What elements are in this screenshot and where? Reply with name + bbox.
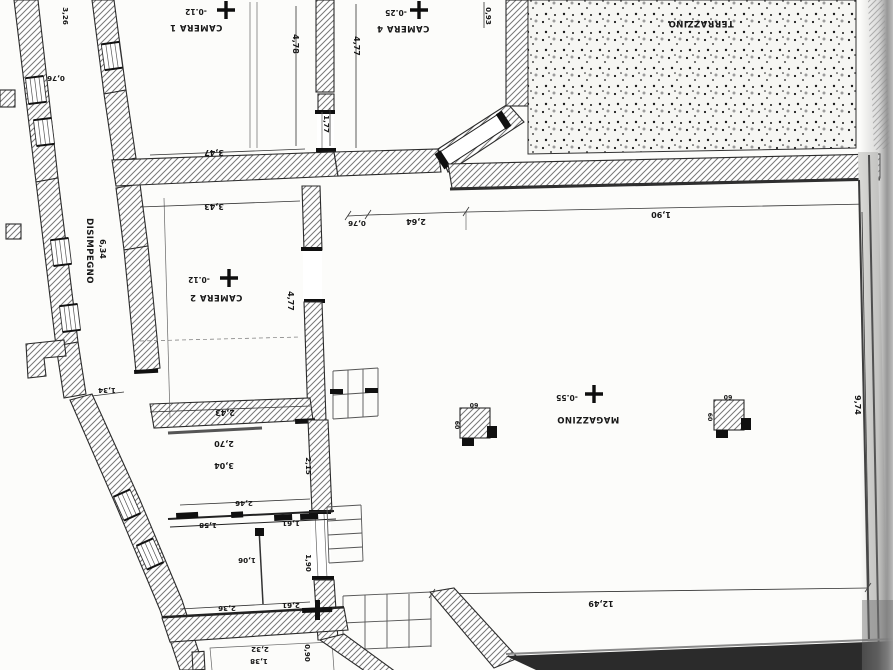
dim-corridor-end: 1,34 [98,386,116,395]
dim-camera4-depth: 4,77 [352,36,361,56]
window-icon [50,238,71,266]
dim-room-b-top: 1,58 [199,521,217,530]
level-label-camera-4: -0.25 [385,8,407,17]
dim-magazzino-width: 12,49 [588,599,614,608]
room-label-camera-2: CAMERA 2 [190,292,243,302]
dim-magazzino-top-2: 2,64 [406,217,426,226]
dim-magazzino-top-1: 0,76 [348,219,366,228]
room-label-camera-4: CAMERA 4 [377,23,430,33]
dim-camera1-depth: 4,78 [291,34,300,54]
level-label-camera-2: -0.12 [188,275,210,284]
dim-room-d-2: 1,38 [250,657,268,666]
dim-camera2-depth: 4,77 [286,291,295,311]
window-icon [101,42,122,70]
room-label-terrazzino: TERRAZZINO [668,18,734,28]
dim-room-a-height: 2,15 [304,457,313,475]
level-label-magazzino: -0.55 [556,393,578,402]
level-label-camera-1: -0.12 [185,7,207,16]
dim-room-c-top: 1,61 [282,519,300,528]
dim-camera2-bottom: 2,43 [215,408,235,417]
dim-room-d-1: 2,32 [251,645,269,654]
dim-room-b-bottom: 2,36 [218,604,236,613]
scan-shadow-right [860,0,893,670]
room-label-magazzino: MAGAZZINO [557,414,619,424]
room-label-camera-1: CAMERA 1 [170,22,223,32]
dim-top-left: 3,26 [61,7,70,25]
dim-room-a-2: 3,04 [214,461,234,470]
dim-magazzino-top-3: 1,90 [651,210,671,219]
dim-pillar2-a: 60 [723,393,732,400]
dim-camera2-width: 3,43 [204,202,224,211]
floor-plan-sheet: CAMERA 1-0.12CAMERA 4-0.25TERRAZZINOCAME… [0,0,893,670]
dim-pillar1-a: 60 [469,401,478,408]
dim-left-window: 0,76 [47,74,65,83]
scan-shadow-corner [862,600,893,670]
dim-room-a-bottom: 2,46 [235,499,253,508]
dim-camera1-width: 3,47 [204,148,224,157]
room-label-disimpegno: DISIMPEGNO [84,218,94,284]
dim-camera4-right: 0,93 [484,7,493,25]
dim-pillar2-b: 60 [706,413,713,422]
dim-room-c-side: 1,90 [304,554,313,572]
window-icon [59,304,80,332]
dim-room-d-side: 0,90 [303,644,312,662]
window-icon [25,76,46,104]
floor-plan-canvas: CAMERA 1-0.12CAMERA 4-0.25TERRAZZINOCAME… [0,0,893,670]
dim-room-b-inner: 1,06 [238,556,256,565]
dim-camera4-door: 1,77 [322,115,331,133]
window-icon [33,118,54,146]
dim-room-a-1: 2,70 [214,439,234,448]
dim-disimpegno-length: 6,34 [98,239,107,259]
dim-room-c-bottom: 2,61 [282,601,300,610]
dim-magazzino-depth: 9,74 [853,395,862,415]
dim-pillar1-b: 60 [453,421,460,430]
